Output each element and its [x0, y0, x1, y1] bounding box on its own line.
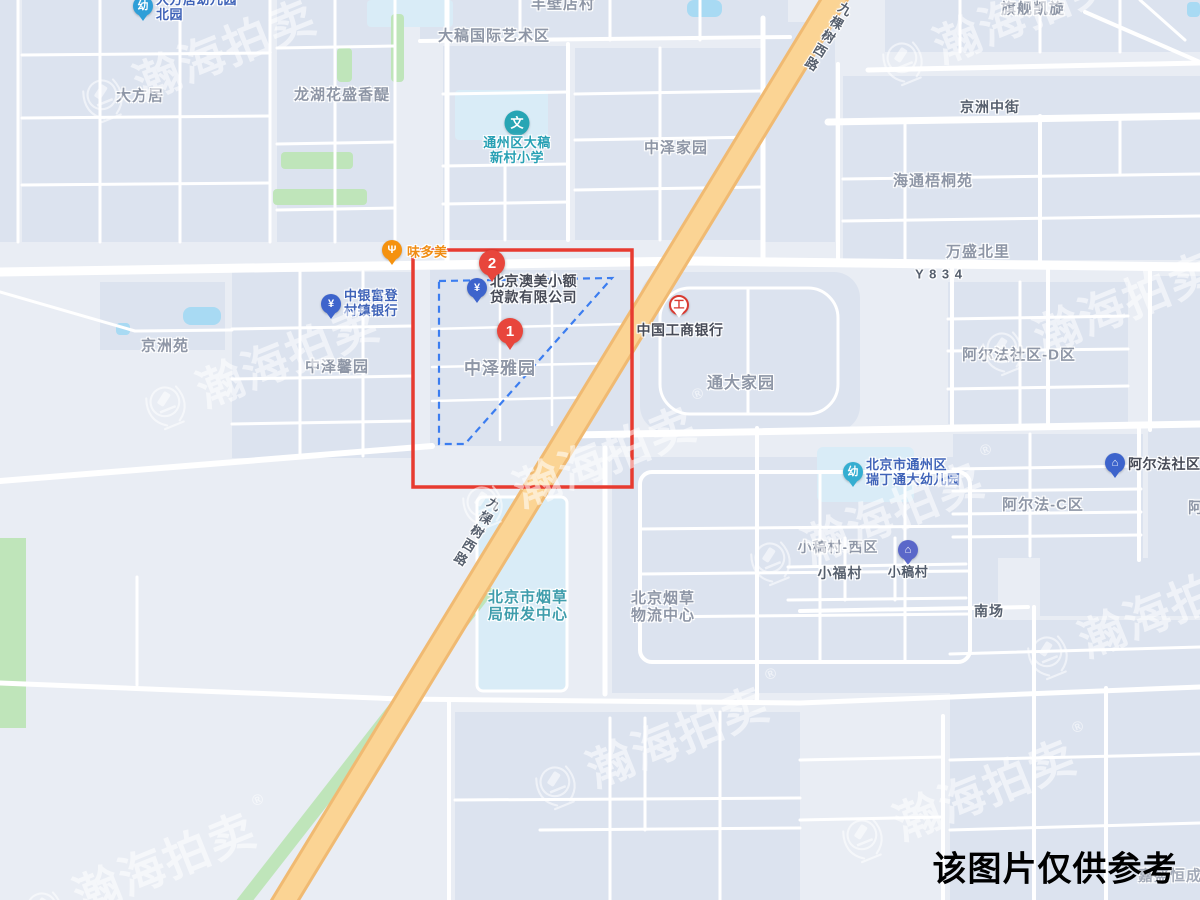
reference-notice: 该图片仅供参考 — [933, 842, 1178, 891]
map-screenshot: 大方居龙湖花盛香醍大稿国际艺术区丰壁店村中泽家园旗舰凯旋海通梧桐苑万盛北里京洲苑… — [0, 0, 1200, 900]
map-canvas — [0, 0, 1200, 900]
